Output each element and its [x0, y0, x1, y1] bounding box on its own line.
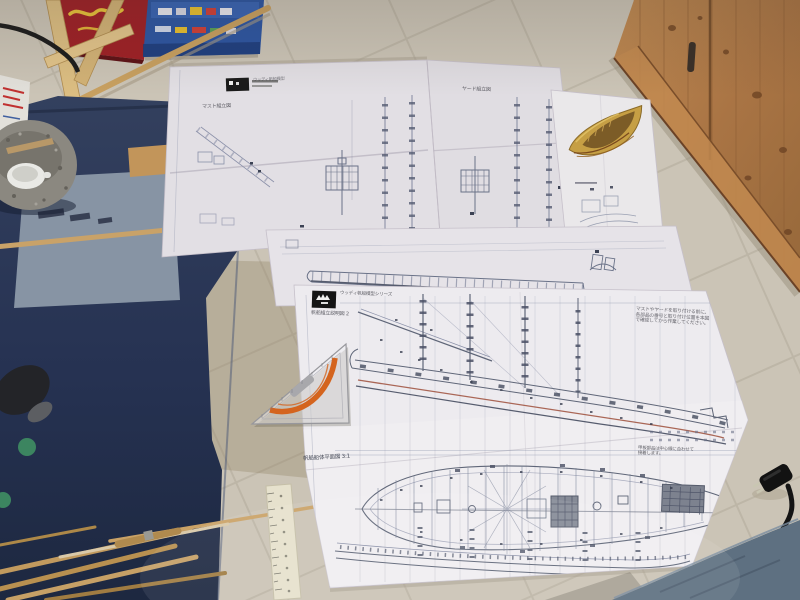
strip-label [143, 530, 154, 541]
scene-canvas [0, 0, 800, 600]
photo-scene: マスト組立図 ウッディ帆船模型 ヤード組立図 ウッディ帆船模型シリーズ 帆船組立… [0, 0, 800, 600]
light-falloff [0, 0, 800, 240]
brand-logo-block [312, 291, 337, 309]
